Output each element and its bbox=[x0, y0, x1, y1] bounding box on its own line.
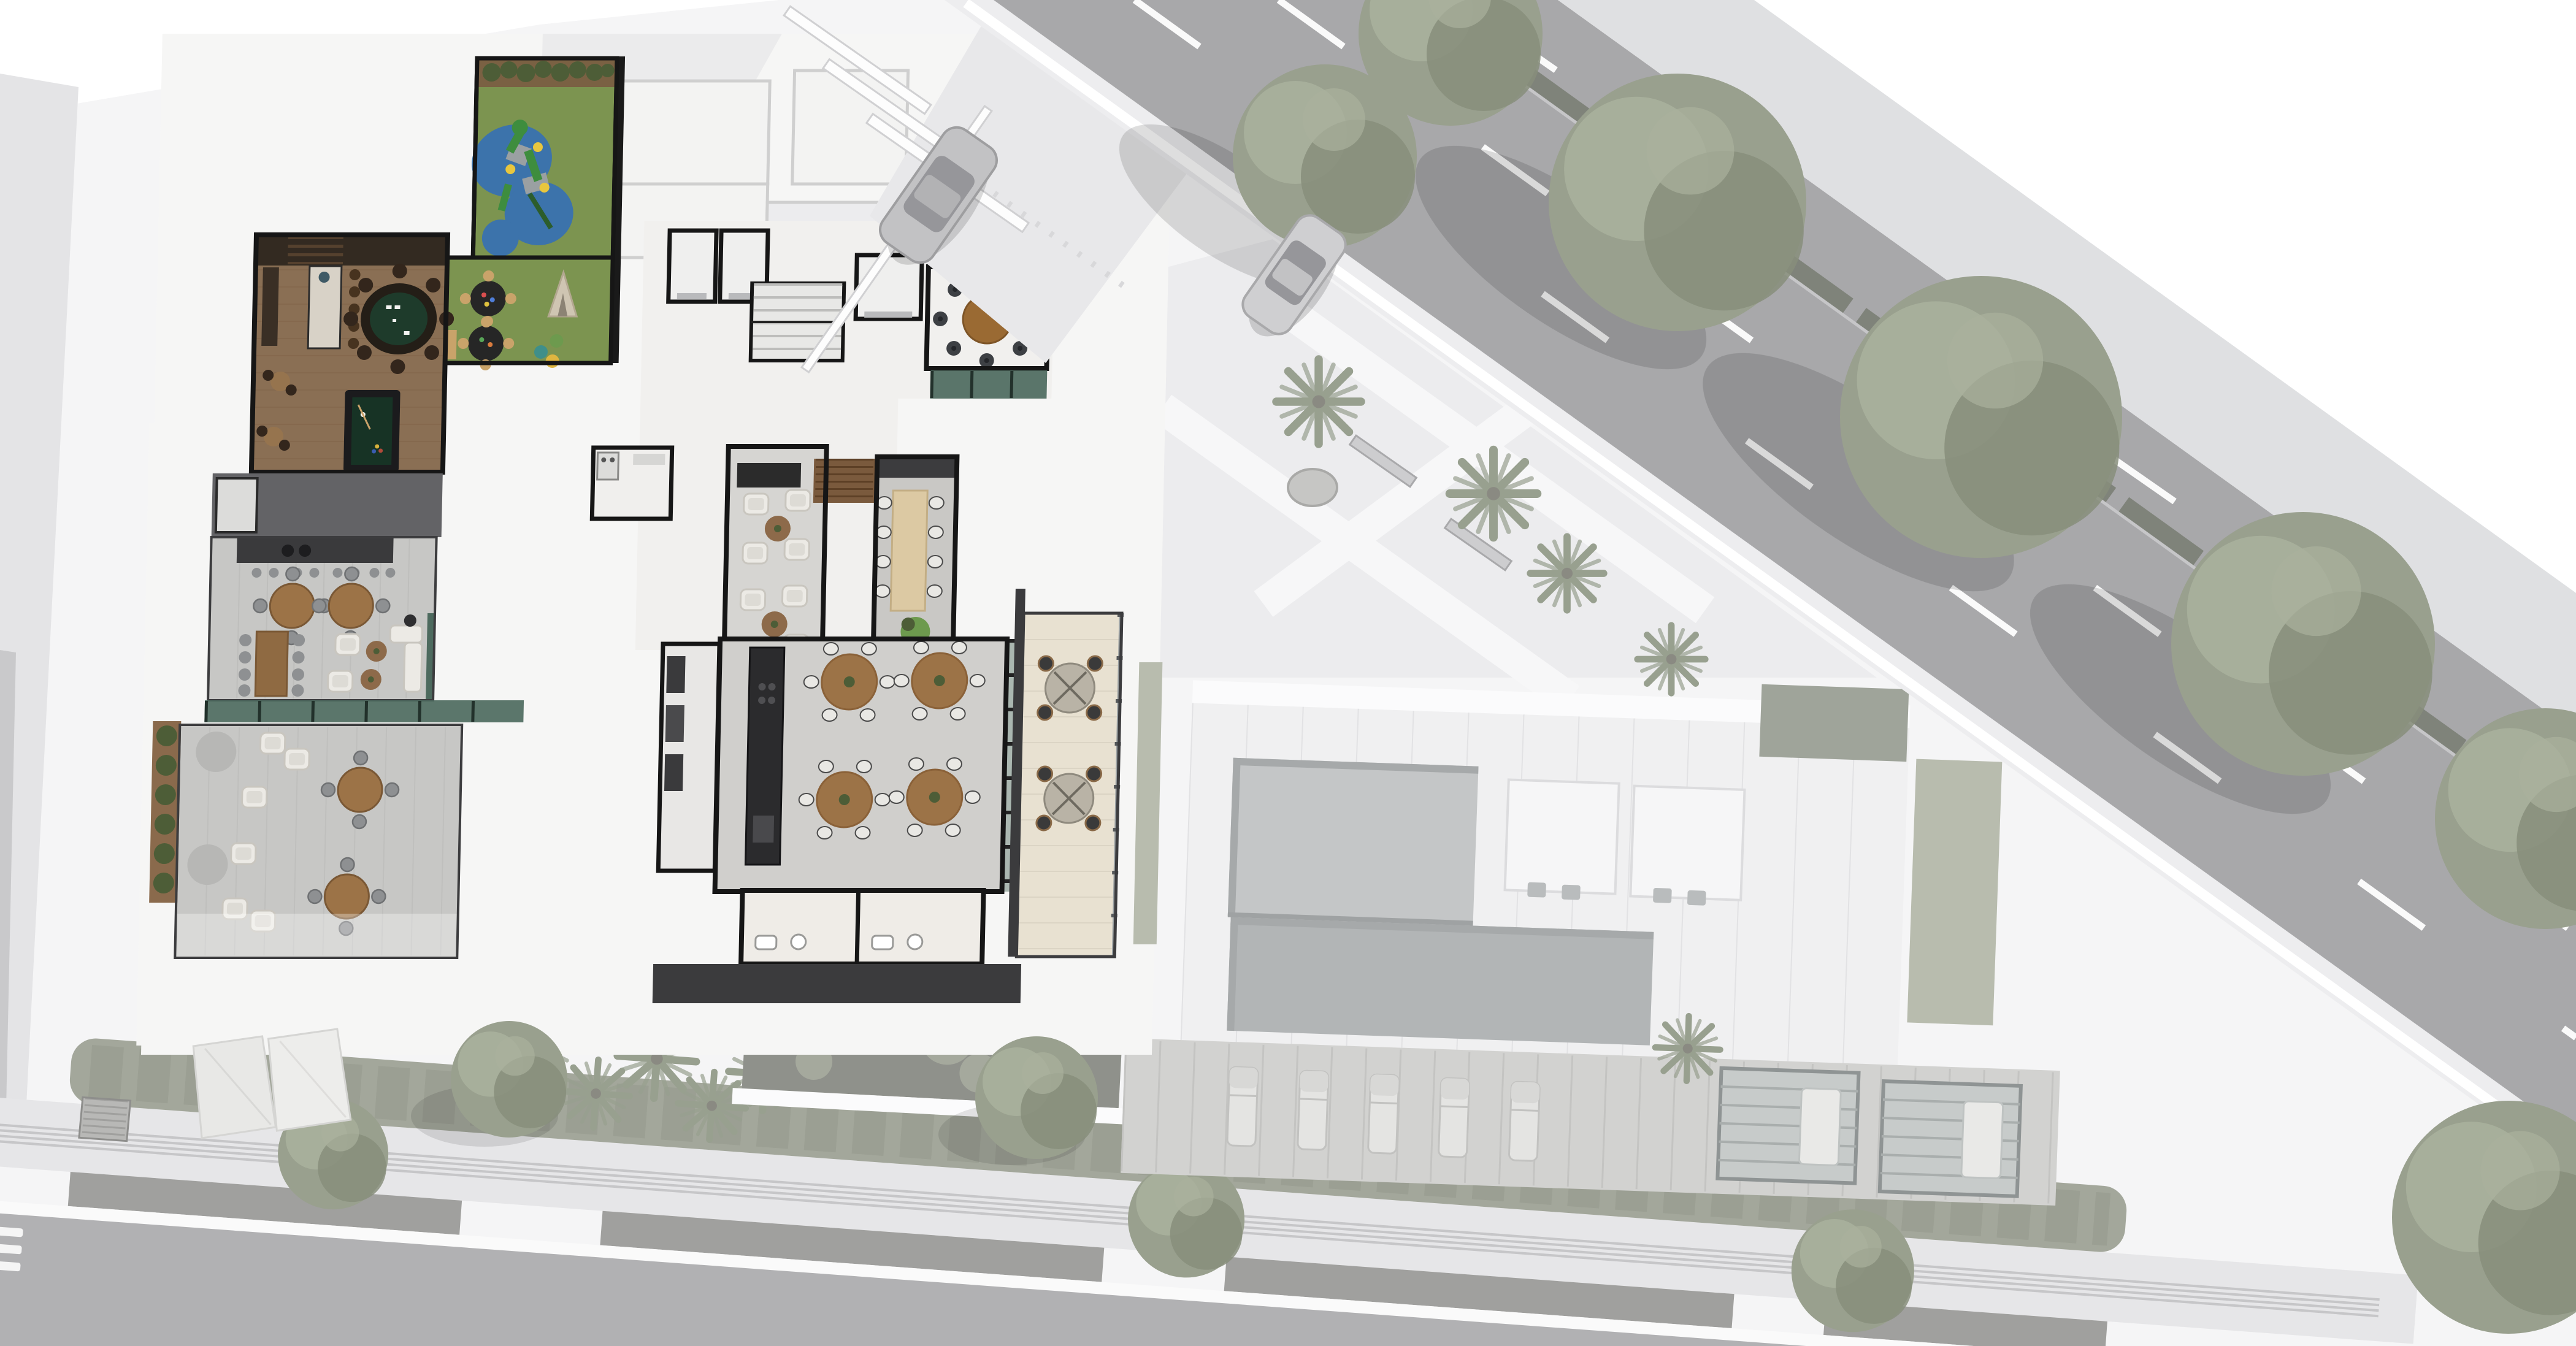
ornamental-grass-strip bbox=[1907, 759, 2002, 1026]
back-bar bbox=[261, 267, 279, 346]
pergola-deck bbox=[813, 459, 876, 503]
lower-terrace bbox=[148, 721, 462, 958]
site-plan-rendering bbox=[0, 0, 2576, 1346]
dining-room bbox=[658, 639, 1016, 892]
kitchenette bbox=[592, 448, 672, 519]
media-wall bbox=[256, 235, 448, 266]
site-plan-canvas bbox=[0, 0, 2576, 1346]
cabana bbox=[1880, 1081, 2021, 1196]
shade-sails bbox=[191, 1029, 353, 1138]
terrace-glass-table bbox=[1037, 767, 1102, 830]
boulder bbox=[1288, 469, 1337, 506]
playground bbox=[461, 58, 618, 258]
bbq-counter bbox=[237, 538, 394, 563]
stone-terrace bbox=[1016, 613, 1163, 957]
pantry bbox=[658, 644, 719, 871]
kids-room bbox=[439, 258, 613, 370]
cabana bbox=[1717, 1068, 1858, 1183]
deck-palm bbox=[1654, 1015, 1721, 1082]
upper-terrace bbox=[208, 537, 437, 700]
game-room bbox=[251, 235, 456, 472]
kitchen-island bbox=[745, 648, 784, 865]
grass-bed bbox=[1759, 684, 1909, 762]
glass-canopy bbox=[204, 700, 524, 722]
storage-room bbox=[216, 478, 258, 532]
long-table bbox=[891, 491, 927, 611]
stairs bbox=[751, 283, 845, 361]
terrace-glass-table bbox=[1037, 656, 1102, 720]
south-roof-band bbox=[136, 957, 736, 1046]
pool-shallow bbox=[1228, 758, 1479, 925]
billiards-table bbox=[343, 390, 401, 472]
vent-grate bbox=[79, 1097, 131, 1141]
tv-wall bbox=[737, 463, 801, 488]
fade-overlay bbox=[175, 914, 458, 958]
south-facade-band bbox=[653, 964, 1021, 1003]
crosswalk bbox=[0, 1226, 23, 1271]
entry-glass-canopy bbox=[930, 370, 1047, 399]
